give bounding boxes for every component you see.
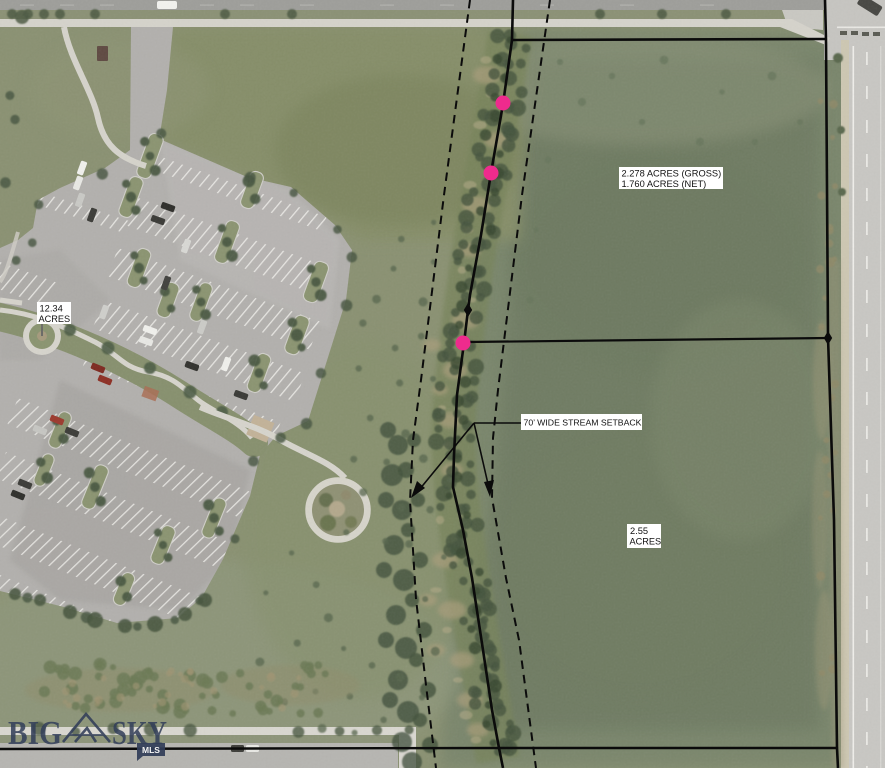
svg-text:12.34: 12.34: [40, 304, 63, 314]
svg-text:70’ WIDE STREAM SETBACK: 70’ WIDE STREAM SETBACK: [524, 418, 642, 428]
svg-text:ACRES: ACRES: [630, 537, 662, 547]
svg-text:2.55: 2.55: [630, 526, 648, 536]
svg-text:2.278 ACRES (GROSS): 2.278 ACRES (GROSS): [622, 169, 722, 179]
svg-text:BIG: BIG: [8, 715, 62, 752]
svg-text:MLS: MLS: [142, 745, 160, 755]
svg-text:ACRES: ACRES: [39, 314, 71, 324]
svg-text:1.760 ACRES (NET): 1.760 ACRES (NET): [622, 179, 707, 189]
